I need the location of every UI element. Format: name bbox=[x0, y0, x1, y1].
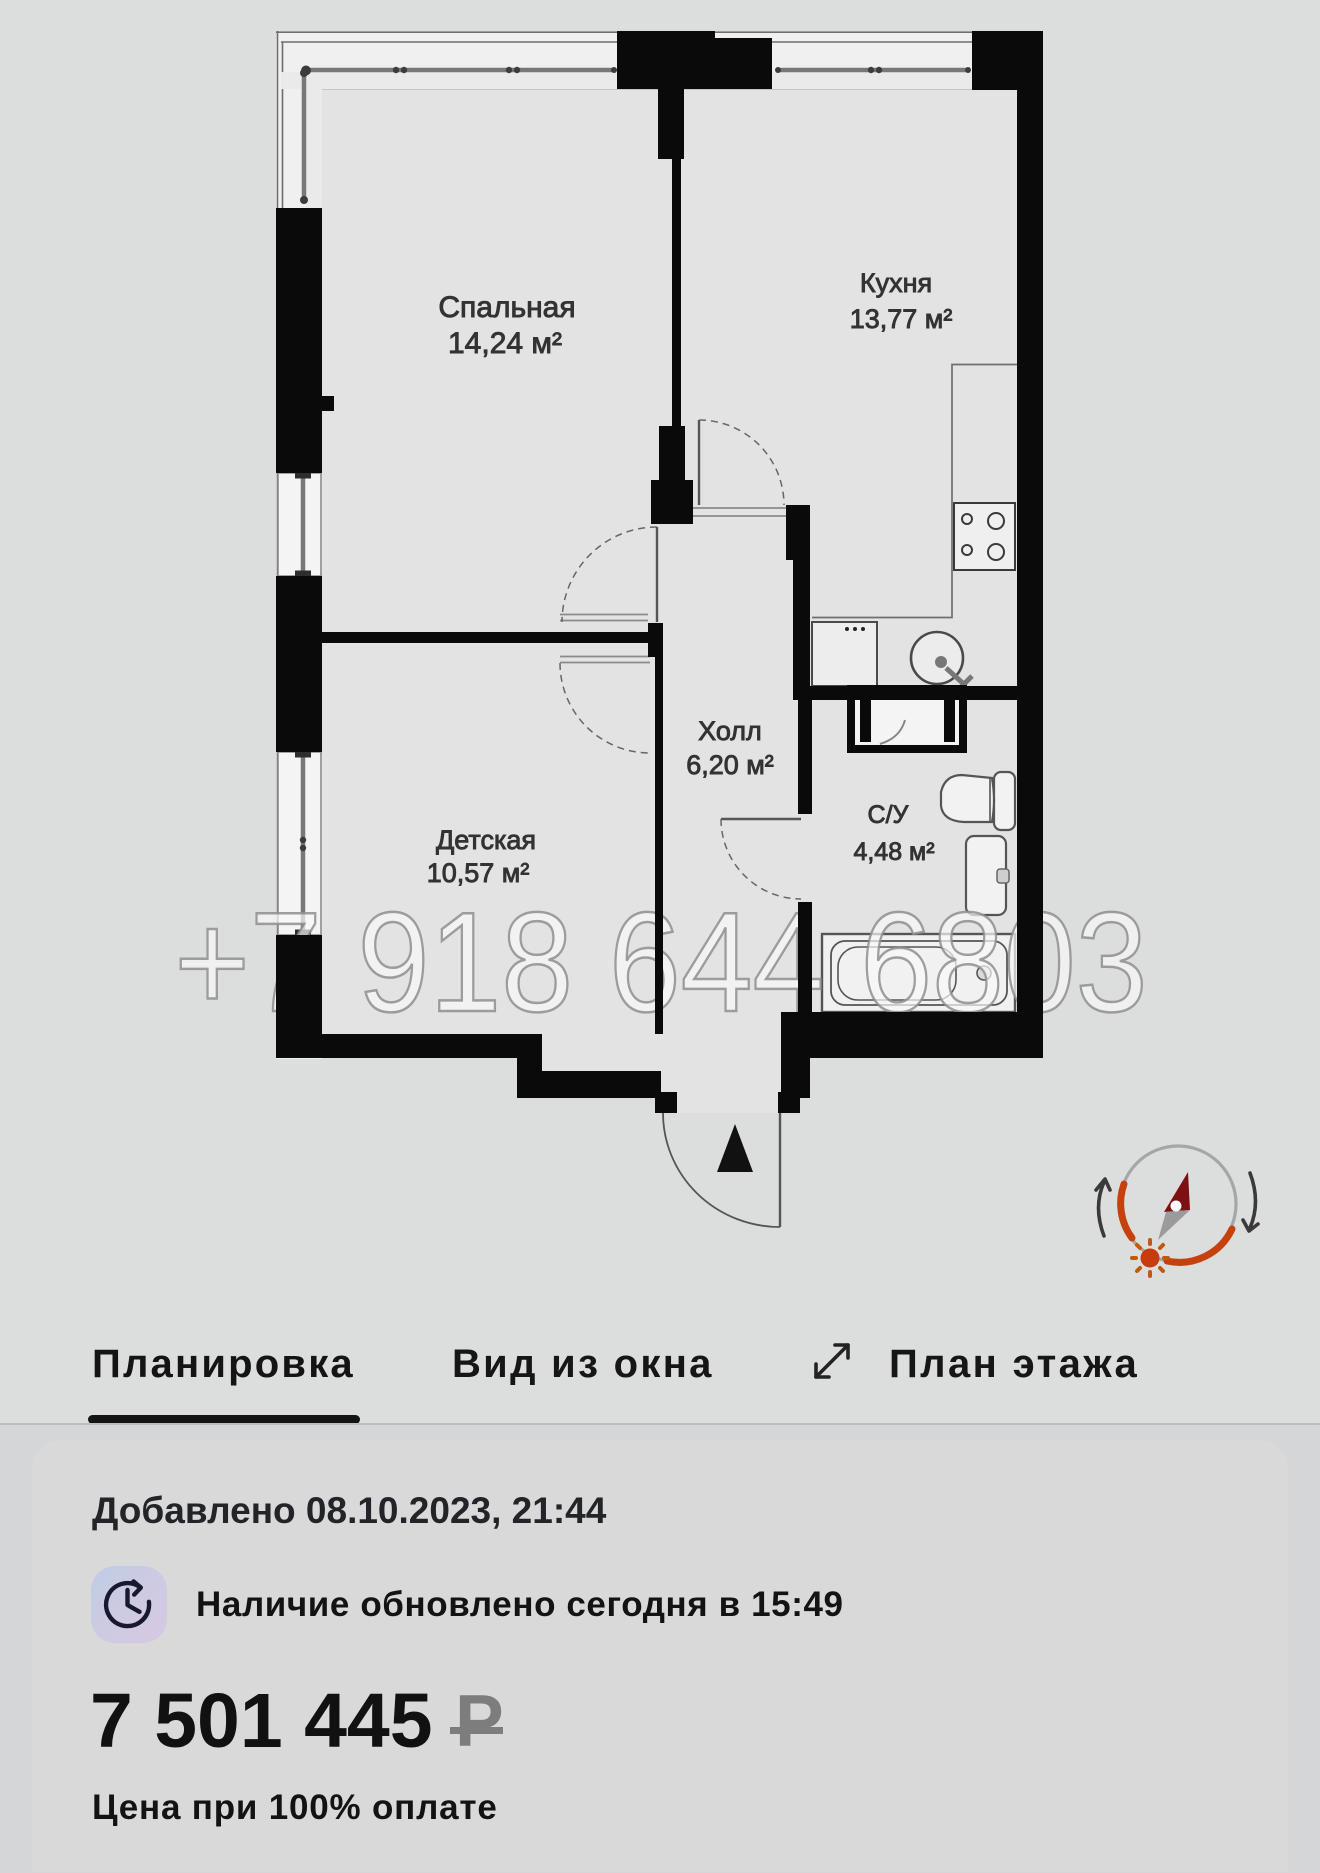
svg-text:С/У: С/У bbox=[868, 801, 909, 829]
svg-text:Спальная: Спальная bbox=[438, 291, 575, 324]
svg-text:10,57 м²: 10,57 м² bbox=[427, 858, 530, 888]
svg-text:4,48 м²: 4,48 м² bbox=[853, 838, 934, 866]
svg-text:14,24 м²: 14,24 м² bbox=[448, 327, 562, 360]
svg-text:Холл: Холл bbox=[698, 716, 762, 746]
svg-text:6,20 м²: 6,20 м² bbox=[686, 750, 774, 780]
svg-text:Детская: Детская bbox=[436, 825, 536, 855]
svg-text:13,77 м²: 13,77 м² bbox=[850, 304, 953, 334]
svg-text:Кухня: Кухня bbox=[860, 268, 932, 298]
